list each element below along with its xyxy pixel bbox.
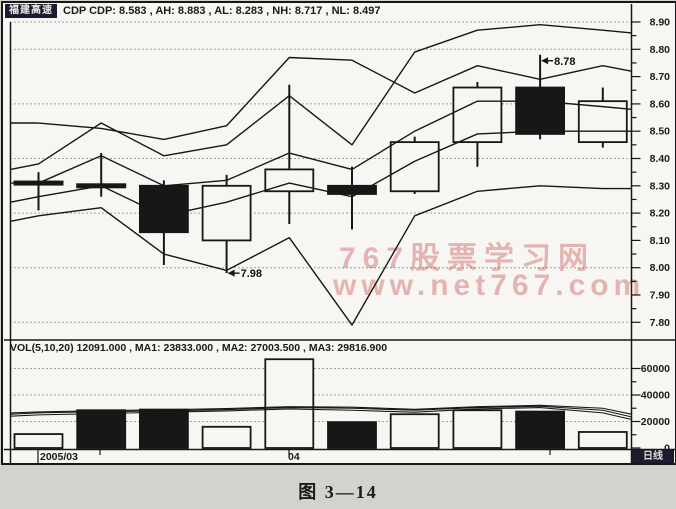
price-axis-label: 8.60 [650,98,671,110]
price-axis-label: 8.70 [650,71,671,83]
price-axis-label: 7.80 [650,317,671,329]
candle-body [391,142,439,191]
annotation-arrow-head [541,57,548,64]
price-axis-label: 8.80 [650,44,671,56]
price-axis-label: 8.00 [650,262,671,274]
price-axis-label: 8.10 [650,235,671,247]
volume-bar [140,410,188,448]
chart-canvas: 8.908.808.708.608.508.408.308.208.108.00… [3,3,675,463]
volume-bar [579,432,627,448]
date-label-april[interactable]: 04 [288,451,300,463]
price-axis-label: 7.90 [650,290,671,302]
candle-body [140,186,188,232]
volume-indicator-values: VOL(5,10,20) 12091.000 , MA1: 23833.000 … [10,342,387,354]
figure-caption: 图 3—14 [0,478,676,504]
cdp-indicator-values: CDP CDP: 8.583 , AH: 8.883 , AL: 8.283 ,… [63,5,381,17]
price-axis-label: 8.40 [650,153,671,165]
date-label-march[interactable]: 2005/03 [40,451,78,463]
volume-bar [77,410,125,448]
annotation-arrow-head [228,270,235,277]
volume-bar [391,414,439,448]
volume-bar [453,410,501,448]
cdp-line-al [11,186,632,325]
title-bar: 福建高速 CDP CDP: 8.583 , AH: 8.883 , AL: 8.… [3,3,675,20]
period-daily-badge[interactable]: 日线 [632,450,674,463]
volume-bar [15,434,63,448]
price-axis-label: 8.50 [650,126,671,138]
cdp-line-nl [11,131,632,216]
volume-bar [328,422,376,448]
volume-bar [516,412,564,448]
page: { "window": { "stock_name": "福建高速", "ind… [0,0,676,509]
price-axis-label: 8.20 [650,208,671,220]
chart-window: 767股票学习网 www.net767.com 8.908.808.708.60… [1,1,676,465]
volume-bar [265,359,313,448]
price-axis-label: 8.30 [650,180,671,192]
volume-axis-label: 60000 [641,363,670,375]
volume-bar [203,427,251,448]
volume-axis-label: 20000 [641,416,670,428]
candle-body [203,186,251,241]
annotation-price-label: 7.98 [241,268,262,280]
volume-axis-label: 40000 [641,390,670,402]
stock-name-badge[interactable]: 福建高速 [5,4,57,18]
candle-body [516,88,564,134]
annotation-price-label: 8.78 [554,56,575,68]
